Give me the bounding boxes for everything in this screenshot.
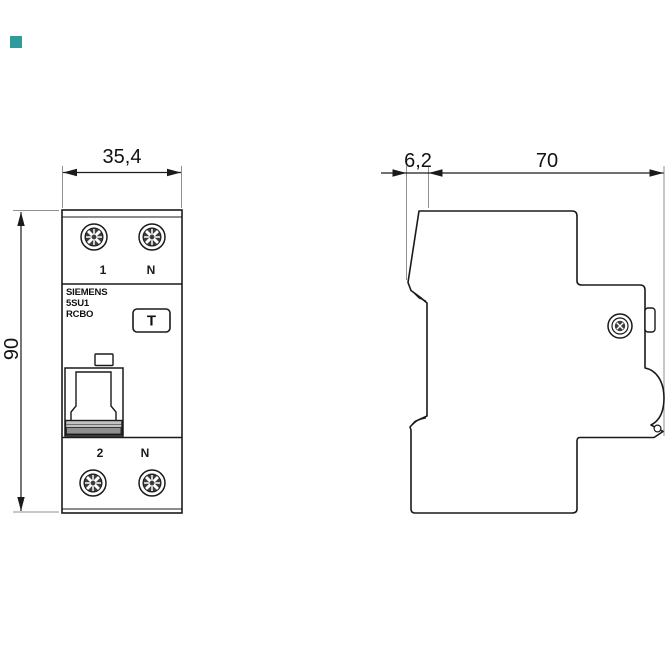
breaker-side-profile bbox=[408, 211, 664, 513]
screw-terminal-1-icon bbox=[81, 224, 107, 250]
breaker-front-body bbox=[62, 210, 182, 513]
switch-grip-stripe bbox=[67, 428, 122, 435]
product-series-text: 5SU1 bbox=[66, 299, 89, 309]
terminal-label-n-top: N bbox=[147, 264, 156, 276]
dimension-drawing-canvas: 35,4 90 6,2 70 1 N 2 N SIEMENS 5SU1 RCBO… bbox=[0, 0, 665, 665]
technical-drawing-svg bbox=[0, 0, 665, 665]
rear-tab bbox=[645, 308, 655, 332]
terminal-label-n-bottom: N bbox=[141, 447, 150, 459]
product-type-text: RCBO bbox=[66, 310, 93, 320]
dim-arrow-rear-icon bbox=[650, 169, 664, 176]
indicator-window bbox=[95, 354, 113, 366]
screw-terminal-n-bottom-icon bbox=[139, 470, 165, 496]
total-depth-dimension-label: 70 bbox=[536, 151, 558, 171]
din-claw-rear-detail bbox=[654, 425, 661, 432]
toggle-switch bbox=[65, 368, 123, 436]
width-dimension-label: 35,4 bbox=[103, 147, 142, 167]
height-dimension-label: 90 bbox=[2, 338, 22, 360]
switch-lever bbox=[71, 372, 116, 421]
product-brand-text: SIEMENS bbox=[66, 288, 107, 298]
dim-arrow-right-icon bbox=[167, 169, 181, 176]
height-dimension bbox=[17, 212, 24, 511]
screw-terminal-2-icon bbox=[80, 470, 106, 496]
screw-terminal-n-top-icon bbox=[139, 224, 165, 250]
dim-arrow-up-icon bbox=[17, 212, 24, 226]
dim-arrow-down-icon bbox=[17, 497, 24, 511]
front-view-drawing bbox=[13, 166, 182, 513]
terminal-label-2: 2 bbox=[97, 447, 104, 459]
test-button-label: T bbox=[147, 313, 156, 328]
side-screw-icon bbox=[608, 314, 632, 338]
dim-arrow-left-icon bbox=[63, 169, 77, 176]
width-dimension bbox=[63, 169, 181, 176]
terminal-label-1: 1 bbox=[100, 264, 107, 276]
side-view-drawing bbox=[381, 166, 664, 513]
front-depth-dimension-label: 6,2 bbox=[404, 151, 432, 171]
